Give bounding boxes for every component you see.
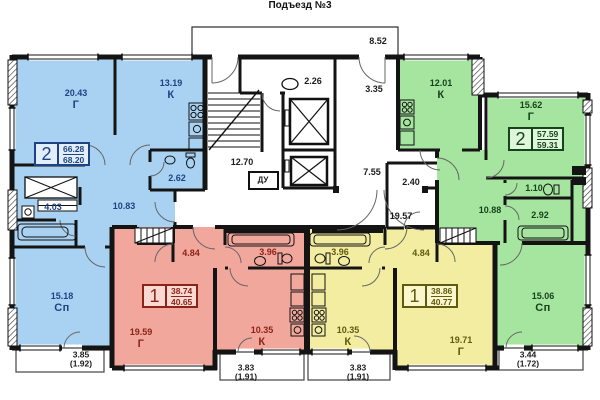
porch-area-label: 8.52 (369, 37, 387, 47)
green-bedroom-label: 15.06 Сп (532, 292, 555, 314)
red-hall-label: 4.84 (182, 249, 200, 259)
green-living-label: 15.62 Г (520, 101, 543, 123)
porch-outline (192, 27, 398, 55)
blue-balcony-label: 3.85 (1.92) (70, 351, 92, 370)
blue-bedroom-label: 15.18 Сп (51, 292, 74, 314)
green-bathroom-label: 2.92 (531, 211, 549, 221)
apartment-fills (12, 57, 588, 368)
yellow-bathroom-label: 3.96 (331, 248, 349, 258)
refuse-room-label: 2.26 (304, 77, 322, 87)
storage-label: 2.40 (402, 178, 420, 188)
yellow-kitchen-label: 10.35 К (337, 326, 360, 348)
red-kitchen-label: 10.35 К (251, 326, 274, 348)
green-wc-label: 1.10 (525, 184, 543, 194)
stairs (208, 90, 260, 150)
lobby-upper-label: 3.35 (365, 85, 383, 95)
green-corridor-label: 10.88 (479, 206, 502, 216)
blue-hall-label: 4.03 (44, 203, 62, 213)
blue-living-label: 20.43 Г (65, 89, 88, 111)
lobby-mid-label: 7.55 (363, 168, 381, 178)
blue-bathroom-label: 2.62 (168, 174, 186, 184)
red-balcony-label: 3.83 (1.91) (235, 364, 257, 383)
corridor-label: 19.57 (390, 212, 413, 222)
stairwell-label: 12.70 (231, 158, 254, 168)
blue-apartment-badge: 2 66.28 68.20 (34, 142, 90, 166)
blue-kitchen-label: 13.19 К (160, 79, 183, 101)
yellow-living-label: 19.71 Г (450, 336, 473, 358)
floor-plan-drawing (0, 0, 600, 400)
yellow-apartment-badge: 1 38.86 40.77 (402, 284, 458, 308)
red-living-label: 19.59 Г (130, 328, 153, 350)
floor-plan: Подъезд №3 (0, 0, 600, 400)
yellow-balcony-label: 3.83 (1.91) (347, 364, 369, 383)
elevator-shafts (285, 99, 328, 185)
green-kitchen-label: 12.01 К (430, 79, 453, 101)
refuse-chute (282, 79, 298, 90)
plan-title: Подъезд №3 (0, 0, 600, 11)
red-apartment-badge: 1 38.74 40.65 (142, 284, 198, 308)
green-apartment-badge: 2 57.59 59.31 (508, 127, 564, 151)
yellow-hall-label: 4.84 (412, 249, 430, 259)
blue-corridor-label: 10.83 (113, 202, 136, 212)
smoke-duct-label: ДУ (258, 177, 269, 186)
green-balcony-label: 3.44 (1.72) (517, 351, 539, 370)
red-bathroom-label: 3.96 (259, 248, 277, 258)
